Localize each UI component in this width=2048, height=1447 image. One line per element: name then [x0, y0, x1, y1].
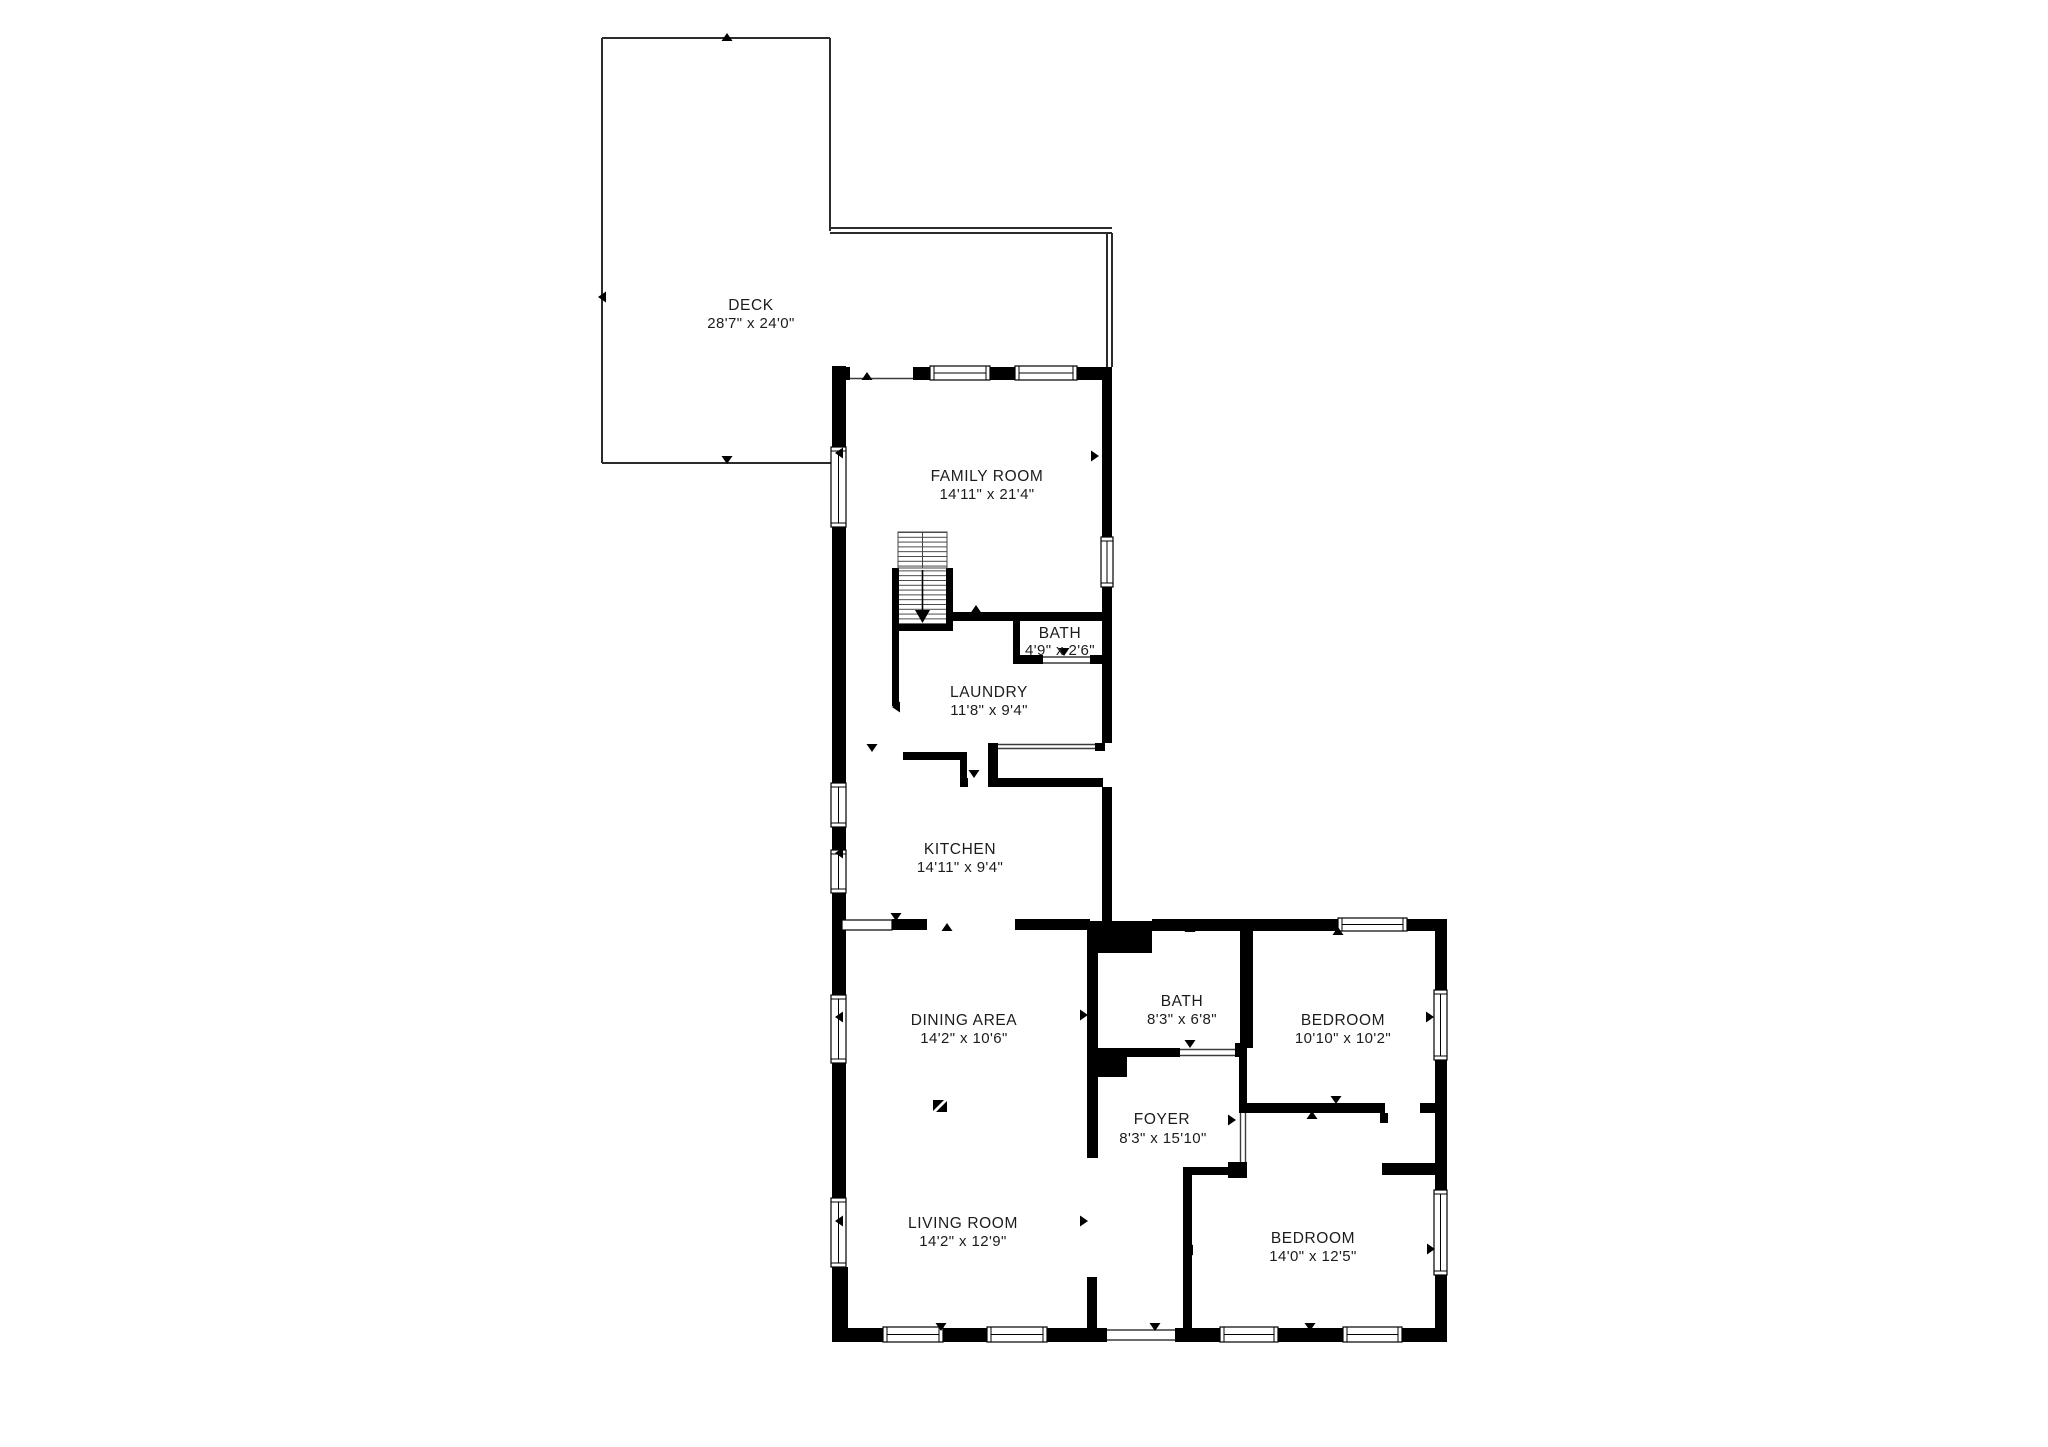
wall-segment	[960, 778, 968, 787]
room-dims-living-room: 14'2" x 12'9"	[919, 1233, 1006, 1250]
wall-segment	[1102, 587, 1112, 743]
wall-segment	[832, 1063, 846, 1198]
stair-wall	[892, 568, 899, 706]
wall-segment	[846, 1328, 883, 1342]
room-dims-dining-area: 14'2" x 10'6"	[920, 1030, 1007, 1047]
wall-segment	[1013, 612, 1020, 655]
room-label-foyer: FOYER	[1134, 1111, 1190, 1128]
room-dims-bedroom-1: 10'10" x 10'2"	[1295, 1030, 1391, 1047]
wall-segment	[1047, 1328, 1107, 1342]
window	[930, 366, 990, 380]
room-label-laundry: LAUNDRY	[950, 684, 1028, 701]
closet-wall	[1095, 743, 1105, 751]
stair-wall	[892, 624, 953, 631]
wall-segment	[1087, 953, 1098, 1158]
wall-segment	[953, 612, 1110, 621]
wall-segment	[1102, 367, 1112, 537]
wall-segment	[1175, 1328, 1220, 1342]
room-dims-bath-main: 8'3" x 6'8"	[1147, 1011, 1217, 1028]
room-dims-laundry: 11'8" x 9'4"	[950, 702, 1028, 719]
wall-segment	[1102, 787, 1112, 921]
wall-segment	[832, 827, 846, 850]
wall-segment	[913, 367, 930, 380]
room-label-bedroom-2: BEDROOM	[1271, 1230, 1355, 1247]
window	[1434, 990, 1447, 1060]
wall-segment	[943, 1328, 987, 1342]
window	[1220, 1327, 1278, 1342]
wall-segment	[1098, 1048, 1180, 1057]
wall-segment	[1240, 1103, 1385, 1113]
room-dims-bath-upper: 4'9" x 2'6"	[1025, 642, 1095, 659]
window	[1101, 537, 1113, 587]
window	[1434, 1190, 1447, 1275]
room-dims-kitchen: 14'11" x 9'4"	[917, 859, 1003, 876]
closet-wall	[1380, 1113, 1388, 1123]
stair-wall	[946, 568, 953, 631]
room-label-bedroom-1: BEDROOM	[1301, 1012, 1385, 1029]
wall-segment	[832, 893, 846, 995]
staircase	[898, 532, 947, 624]
room-dims-deck: 28'7" x 24'0"	[707, 315, 794, 332]
floorplan-page: DECK 28'7" x 24'0" FAMILY ROOM 14'11" x …	[0, 0, 2048, 1447]
window	[831, 447, 846, 527]
wall-segment	[903, 752, 960, 760]
wall-segment	[1402, 1328, 1447, 1342]
wall-segment	[832, 527, 846, 783]
floorplan-drawing: DECK 28'7" x 24'0" FAMILY ROOM 14'11" x …	[0, 0, 2048, 1447]
wall-segment	[1435, 919, 1447, 990]
room-label-living-room: LIVING ROOM	[908, 1215, 1018, 1232]
wall-segment	[1015, 919, 1090, 930]
room-dims-bedroom-2: 14'0" x 12'5"	[1269, 1248, 1356, 1265]
closet-wall	[988, 743, 998, 787]
wall-segment	[832, 1267, 848, 1342]
room-dims-family-room: 14'11" x 21'4"	[939, 486, 1034, 503]
room-dims-foyer: 8'3" x 15'10"	[1119, 1130, 1206, 1147]
window	[1338, 918, 1407, 931]
window	[883, 1327, 943, 1342]
wall-segment	[1420, 1103, 1437, 1113]
wall-segment	[892, 919, 927, 930]
window	[831, 1198, 846, 1267]
canvas-background	[0, 0, 2048, 1447]
wall-segment	[988, 778, 1103, 787]
wall-segment	[1240, 931, 1253, 1048]
wall-segment	[1183, 1167, 1192, 1342]
room-label-kitchen: KITCHEN	[924, 841, 996, 858]
room-label-bath-upper: BATH	[1039, 625, 1082, 642]
wall-segment	[1087, 921, 1152, 953]
window	[987, 1327, 1047, 1342]
room-label-dining-area: DINING AREA	[911, 1012, 1018, 1029]
pass-through-window	[842, 920, 892, 930]
room-label-bath-main: BATH	[1161, 993, 1204, 1010]
closet-wall	[1382, 1163, 1437, 1175]
wall-segment	[1183, 1167, 1247, 1175]
window	[831, 995, 846, 1063]
wall-segment	[832, 367, 850, 380]
window	[831, 850, 846, 893]
window	[1343, 1327, 1402, 1342]
wall-segment	[1152, 919, 1338, 931]
window	[831, 783, 846, 827]
wall-segment	[1087, 1277, 1097, 1332]
window	[1015, 366, 1077, 380]
room-label-family-room: FAMILY ROOM	[931, 468, 1044, 485]
wall-segment	[990, 367, 1015, 380]
room-label-deck: DECK	[728, 297, 774, 314]
